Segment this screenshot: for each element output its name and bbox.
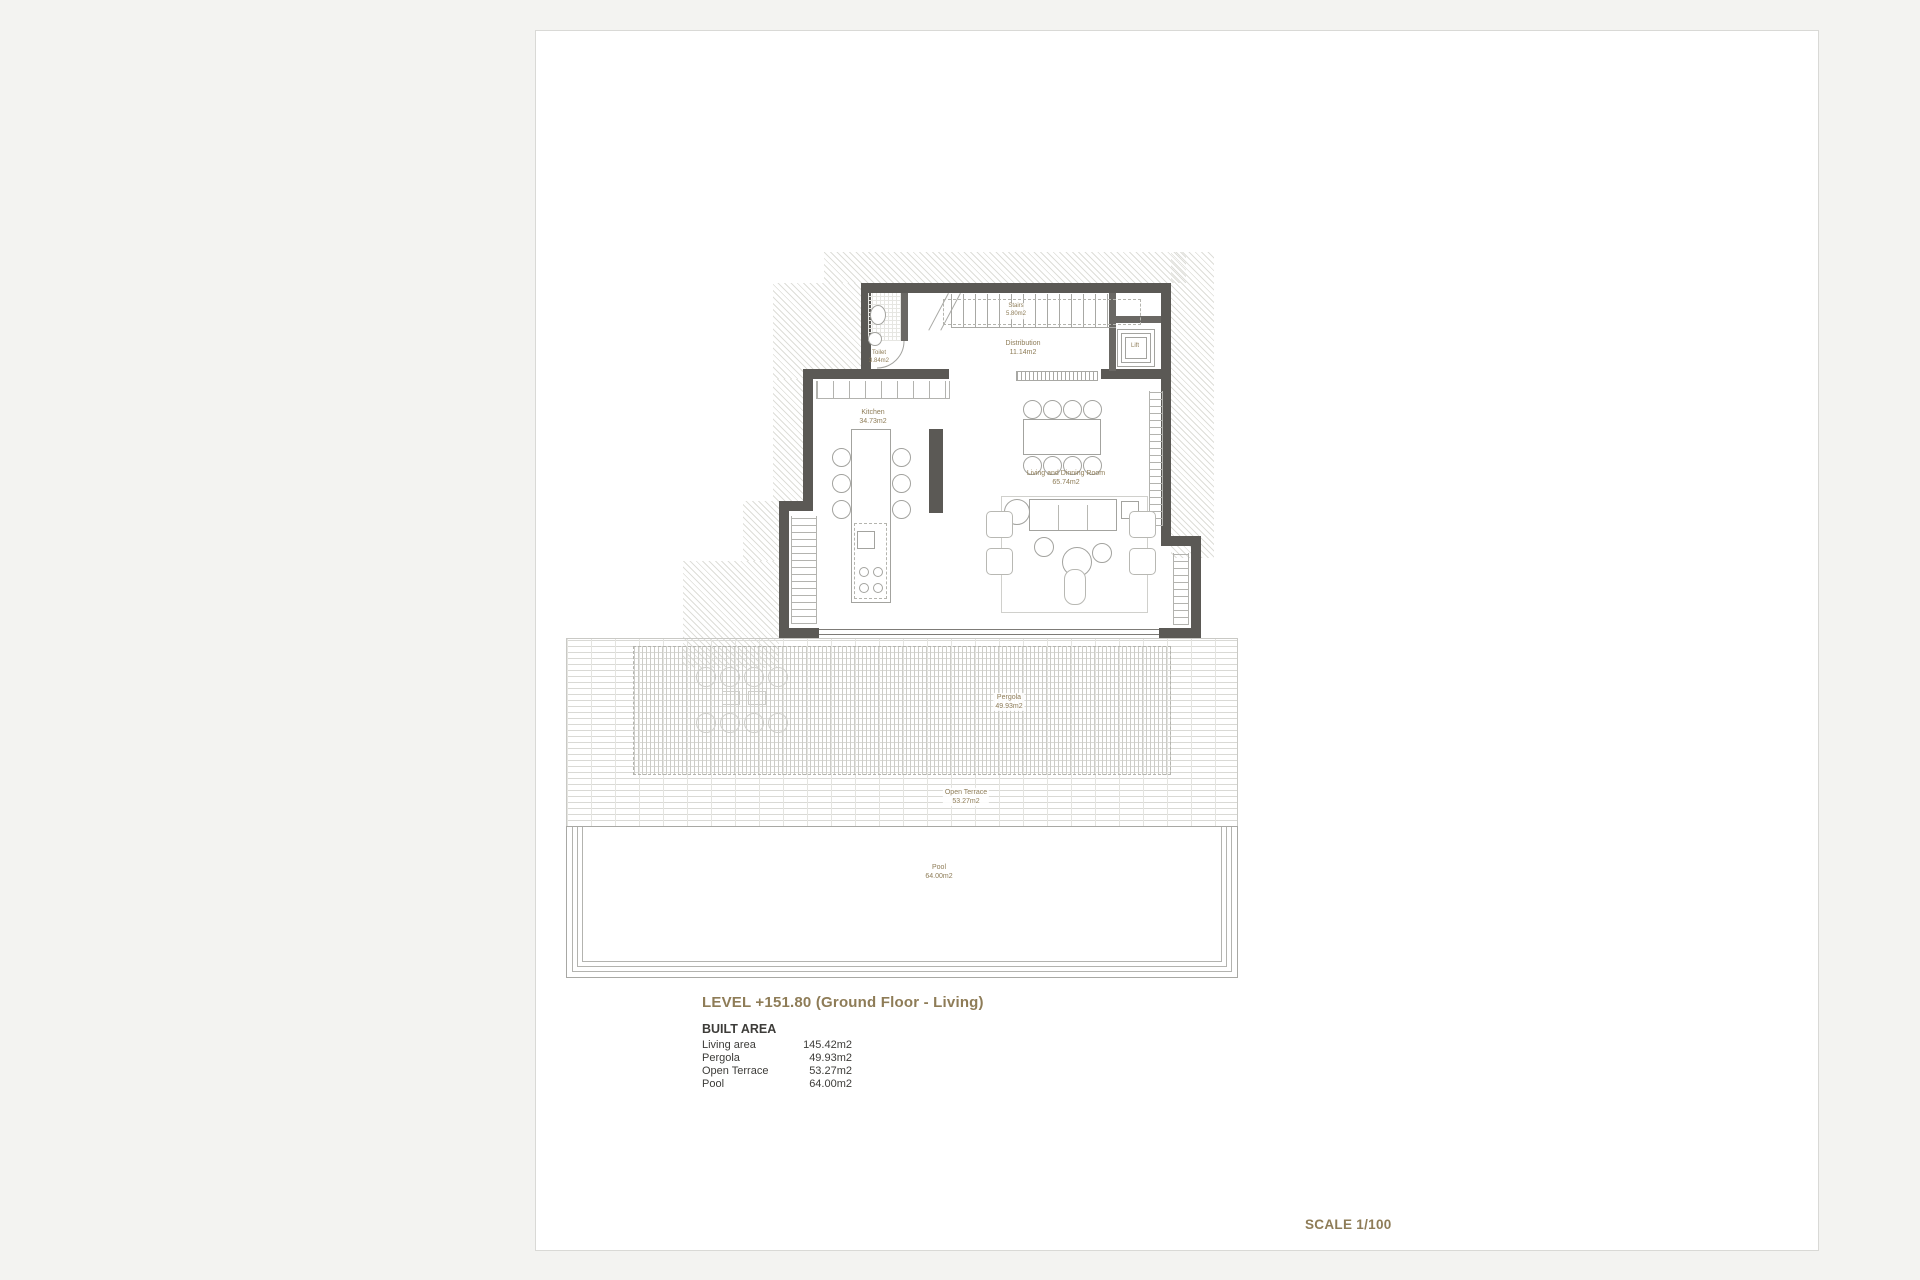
page-background: Toilet 3.84m2 Stairs 5.80m2 Distribution…: [0, 0, 1920, 1280]
outdoor-chair: [744, 713, 764, 733]
sofa: [1029, 499, 1117, 531]
kitchen-divider-wall: [929, 429, 943, 513]
hatch-top-band: [824, 252, 1186, 283]
living-name: Living and Dinning Room: [1027, 470, 1105, 477]
pergola-label: Pergola 49.93m2: [993, 693, 1024, 711]
kitchen-name: Kitchen: [861, 409, 884, 416]
island-stool: [832, 500, 851, 519]
island-stool: [832, 448, 851, 467]
glazing-east-lower: [1173, 553, 1189, 625]
outdoor-chair: [696, 713, 716, 733]
glazing-east-upper: [1149, 391, 1163, 526]
stairs-name: Stairs: [1004, 303, 1028, 311]
coffee-table-small: [1092, 543, 1112, 563]
chaise-pouf: [1064, 569, 1086, 605]
wall-right-lower: [1191, 546, 1201, 638]
outdoor-chair: [768, 713, 788, 733]
stairs-area: 5.80m2: [1004, 311, 1028, 319]
dining-chair: [1083, 400, 1102, 419]
pool-name: Pool: [932, 864, 946, 871]
dining-chair: [1023, 400, 1042, 419]
wall-kitchen-top: [803, 369, 949, 379]
kitchen-sink: [857, 531, 875, 549]
toilet-area: 3.84m2: [869, 358, 889, 364]
scale-label: SCALE 1/100: [1305, 1217, 1392, 1232]
distribution-label: Distribution 11.14m2: [1005, 339, 1040, 357]
hatch-left-step-1: [773, 283, 861, 379]
cooktop-burner: [859, 583, 869, 593]
armchair: [986, 548, 1013, 575]
kitchen-counter: [816, 381, 950, 399]
built-area-row-label: Living area: [702, 1039, 794, 1051]
cooktop-burner: [873, 583, 883, 593]
open-terrace-label: Open Terrace 53.27m2: [943, 788, 989, 806]
wall-bottom-right-corner: [1159, 628, 1201, 638]
outdoor-table: [722, 691, 740, 705]
open-terrace-area: 53.27m2: [943, 797, 989, 806]
island-stool: [832, 474, 851, 493]
hatch-right-column: [1171, 252, 1214, 558]
wall-toilet-partition: [901, 293, 908, 341]
pool-area: 64.00m2: [925, 873, 952, 880]
open-terrace-name: Open Terrace: [943, 788, 989, 797]
outdoor-chair: [768, 667, 788, 687]
built-area-row-label: Open Terrace: [702, 1065, 794, 1077]
built-area-table: Living area 145.42m2 Pergola 49.93m2 Ope…: [702, 1039, 852, 1090]
dining-chair: [1063, 400, 1082, 419]
island-stool: [892, 500, 911, 519]
wall-bottom-left-corner: [779, 628, 819, 638]
outdoor-chair: [720, 667, 740, 687]
hatch-left-step-3: [743, 501, 779, 561]
distribution-grille: [1016, 371, 1098, 381]
wall-right-jog: [1161, 536, 1201, 546]
built-area-row-label: Pool: [702, 1078, 794, 1090]
dining-table: [1023, 419, 1101, 455]
pergola-canopy: [633, 646, 1171, 775]
wall-top: [861, 283, 1171, 293]
wall-left-lower: [779, 511, 789, 638]
cooktop-burner: [873, 567, 883, 577]
wall-left-jog: [779, 501, 813, 511]
arc-lamp: [1034, 537, 1054, 557]
wall-lift-left: [1109, 323, 1116, 371]
armchair: [1129, 548, 1156, 575]
lift-name: Lift: [1131, 343, 1139, 349]
distribution-name: Distribution: [1005, 340, 1040, 347]
toilet-name: Toilet: [872, 350, 886, 356]
distribution-area: 11.14m2: [1010, 349, 1037, 356]
kitchen-area: 34.73m2: [859, 418, 886, 425]
sofa-cushion-line: [1058, 505, 1059, 530]
outdoor-chair: [696, 667, 716, 687]
living-area: 65.74m2: [1052, 479, 1079, 486]
wall-left-mid: [803, 379, 813, 501]
built-area-row-value: 145.42m2: [794, 1039, 852, 1051]
island-stool: [892, 448, 911, 467]
outdoor-chair: [744, 667, 764, 687]
pergola-area: 49.93m2: [993, 702, 1024, 711]
sofa-cushion-line: [1087, 505, 1088, 530]
built-area-row-value: 49.93m2: [794, 1052, 852, 1064]
built-area-row-label: Pergola: [702, 1052, 794, 1064]
sheet-title: LEVEL +151.80 (Ground Floor - Living): [702, 994, 984, 1011]
armchair: [986, 511, 1013, 538]
glazing-south-doors: [819, 629, 1159, 635]
living-label: Living and Dinning Room 65.74m2: [1027, 469, 1105, 487]
pergola-name: Pergola: [993, 693, 1024, 702]
stairs-label: Stairs 5.80m2: [1004, 303, 1028, 319]
pool-rim-step: [582, 827, 1222, 962]
hatch-left-step-2: [773, 379, 803, 501]
armchair: [1129, 511, 1156, 538]
built-area-row-value: 64.00m2: [794, 1078, 852, 1090]
toilet-label: Toilet 3.84m2: [869, 350, 889, 366]
lift-label: Lift: [1131, 343, 1139, 351]
pool-label: Pool 64.00m2: [925, 863, 952, 881]
outdoor-table: [748, 691, 766, 705]
built-area-row-value: 53.27m2: [794, 1065, 852, 1077]
cooktop-burner: [859, 567, 869, 577]
drawing-sheet: Toilet 3.84m2 Stairs 5.80m2 Distribution…: [535, 30, 1819, 1251]
kitchen-label: Kitchen 34.73m2: [859, 408, 886, 426]
built-area-heading: BUILT AREA: [702, 1022, 776, 1036]
stair-guide-dashed: [943, 299, 1141, 325]
toilet-wc: [870, 305, 886, 325]
island-stool: [892, 474, 911, 493]
kitchen-wall-cabinets: [791, 516, 817, 624]
pool-rim-outer: [566, 826, 1238, 978]
outdoor-chair: [720, 713, 740, 733]
dining-chair: [1043, 400, 1062, 419]
